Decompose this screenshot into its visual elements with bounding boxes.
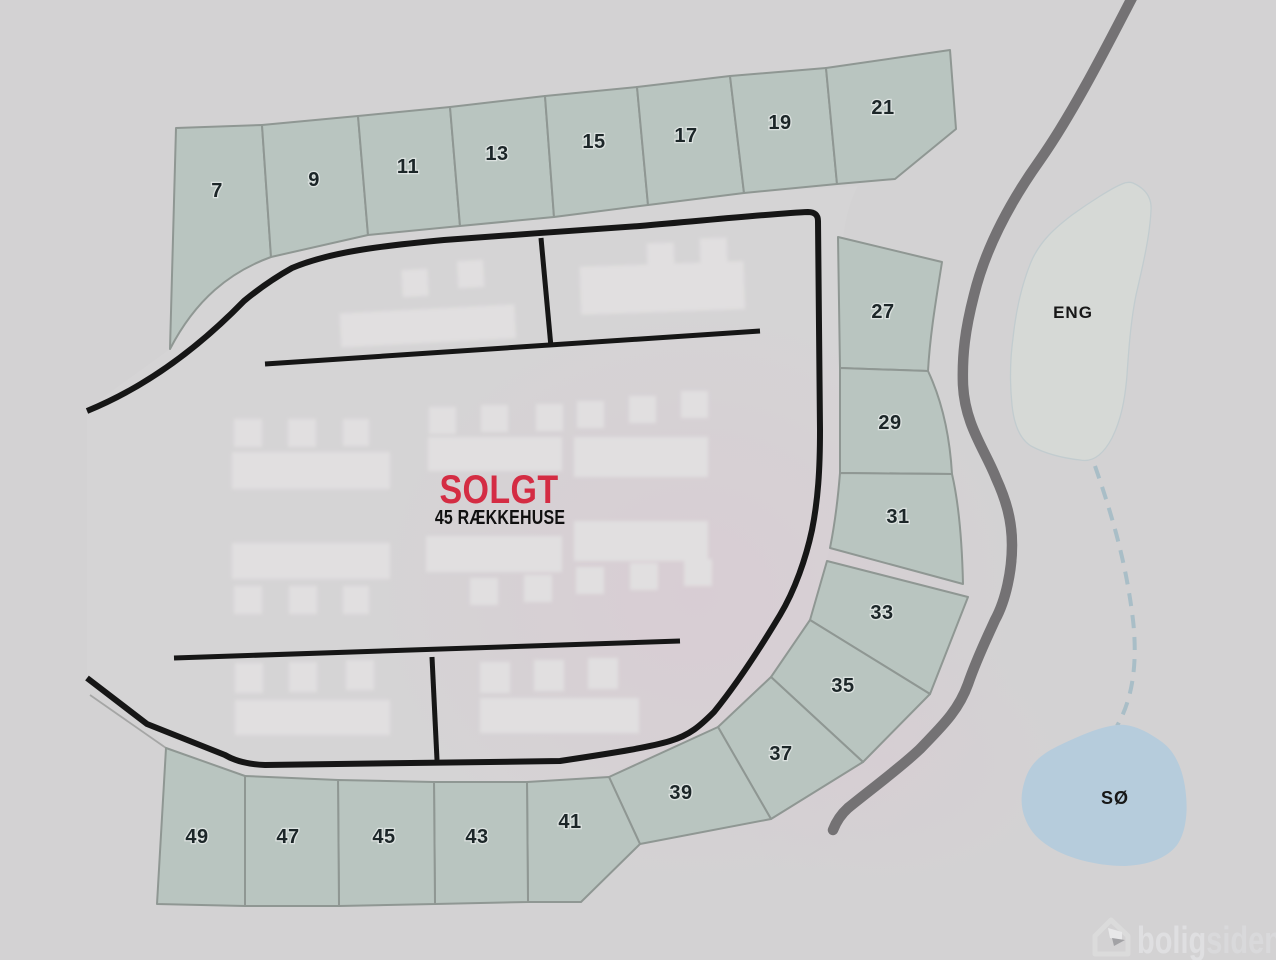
svg-text:SØ: SØ	[1101, 788, 1129, 808]
svg-text:17: 17	[674, 125, 697, 147]
svg-text:49: 49	[185, 826, 208, 848]
svg-text:33: 33	[870, 602, 893, 624]
svg-text:15: 15	[582, 131, 605, 153]
svg-text:9: 9	[308, 169, 320, 191]
svg-text:47: 47	[276, 826, 299, 848]
svg-text:45: 45	[372, 826, 395, 848]
svg-text:37: 37	[769, 743, 792, 765]
svg-text:13: 13	[485, 143, 508, 165]
svg-text:11: 11	[397, 156, 419, 178]
svg-text:ENG: ENG	[1053, 303, 1093, 322]
svg-text:31: 31	[886, 506, 909, 528]
svg-text:41: 41	[558, 811, 581, 833]
svg-text:27: 27	[871, 301, 894, 323]
svg-text:45 RÆKKEHUSE: 45 RÆKKEHUSE	[435, 506, 565, 528]
svg-text:39: 39	[669, 782, 692, 804]
svg-text:SOLGT: SOLGT	[439, 468, 558, 512]
svg-text:21: 21	[871, 97, 894, 119]
svg-text:35: 35	[831, 675, 854, 697]
svg-text:7: 7	[211, 180, 223, 202]
svg-text:29: 29	[878, 412, 901, 434]
svg-text:43: 43	[465, 826, 488, 848]
svg-text:19: 19	[768, 112, 791, 134]
svg-text:boligsiden: boligsiden	[1137, 920, 1276, 960]
